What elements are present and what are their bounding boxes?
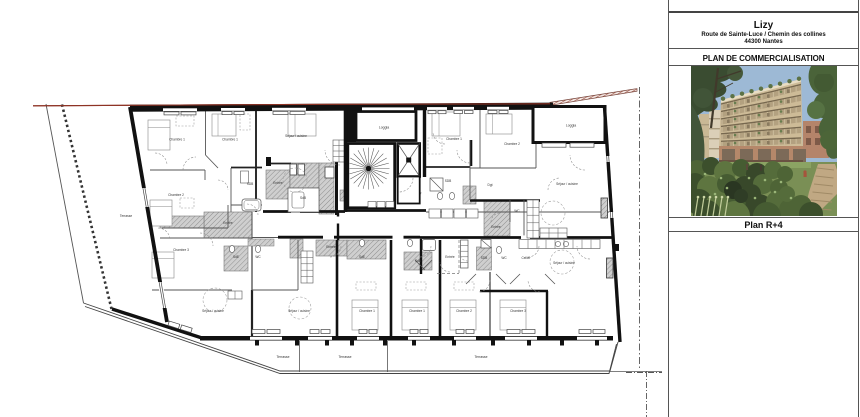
svg-text:Terrasse: Terrasse xyxy=(474,355,487,359)
svg-text:WC: WC xyxy=(514,209,520,213)
svg-text:Dgt: Dgt xyxy=(488,183,493,187)
svg-text:Chambre 1: Chambre 1 xyxy=(446,137,462,141)
svg-text:Chambre 1: Chambre 1 xyxy=(409,309,425,313)
svg-text:Entrée: Entrée xyxy=(223,221,233,225)
svg-text:Chambre 3: Chambre 3 xyxy=(510,309,526,313)
svg-text:Chambre 1: Chambre 1 xyxy=(169,138,185,142)
svg-text:Chambre 1: Chambre 1 xyxy=(222,138,238,142)
svg-text:SDB: SDB xyxy=(481,256,488,260)
svg-text:SdE: SdE xyxy=(359,255,365,259)
svg-text:Entrée: Entrée xyxy=(273,181,283,185)
svg-text:Entrée: Entrée xyxy=(445,255,455,259)
svg-text:Entrée: Entrée xyxy=(326,245,336,249)
svg-text:Chambre 2: Chambre 2 xyxy=(168,193,184,197)
svg-text:Chambre 1: Chambre 1 xyxy=(359,309,375,313)
svg-text:Chambre 3: Chambre 3 xyxy=(173,248,189,252)
svg-text:SdB: SdB xyxy=(415,259,421,263)
svg-text:SDB: SDB xyxy=(445,179,452,183)
svg-text:WC: WC xyxy=(255,255,261,259)
svg-text:Séjour / cuisine: Séjour / cuisine xyxy=(202,309,224,313)
svg-text:SDB: SDB xyxy=(247,182,254,186)
svg-text:Séjour / cuisine: Séjour / cuisine xyxy=(553,261,575,265)
svg-text:WC: WC xyxy=(501,256,507,260)
svg-text:Entrée: Entrée xyxy=(491,225,501,229)
svg-text:Terrasse: Terrasse xyxy=(120,214,132,218)
svg-text:SdE: SdE xyxy=(233,255,239,259)
svg-text:Chambre 2: Chambre 2 xyxy=(504,142,520,146)
svg-text:Cellier: Cellier xyxy=(521,256,531,260)
svg-text:Chambre 2: Chambre 2 xyxy=(456,309,472,313)
svg-text:Séjour / cuisine: Séjour / cuisine xyxy=(556,182,578,186)
svg-text:Loggia: Loggia xyxy=(566,124,576,128)
svg-text:Séjour / cuisine: Séjour / cuisine xyxy=(288,309,310,313)
svg-text:SdB: SdB xyxy=(300,196,306,200)
svg-text:Terrasse: Terrasse xyxy=(338,355,351,359)
svg-text:Séjour / cuisine: Séjour / cuisine xyxy=(285,134,307,138)
svg-text:Loggia: Loggia xyxy=(379,126,389,130)
svg-text:Terrasse: Terrasse xyxy=(276,355,289,359)
